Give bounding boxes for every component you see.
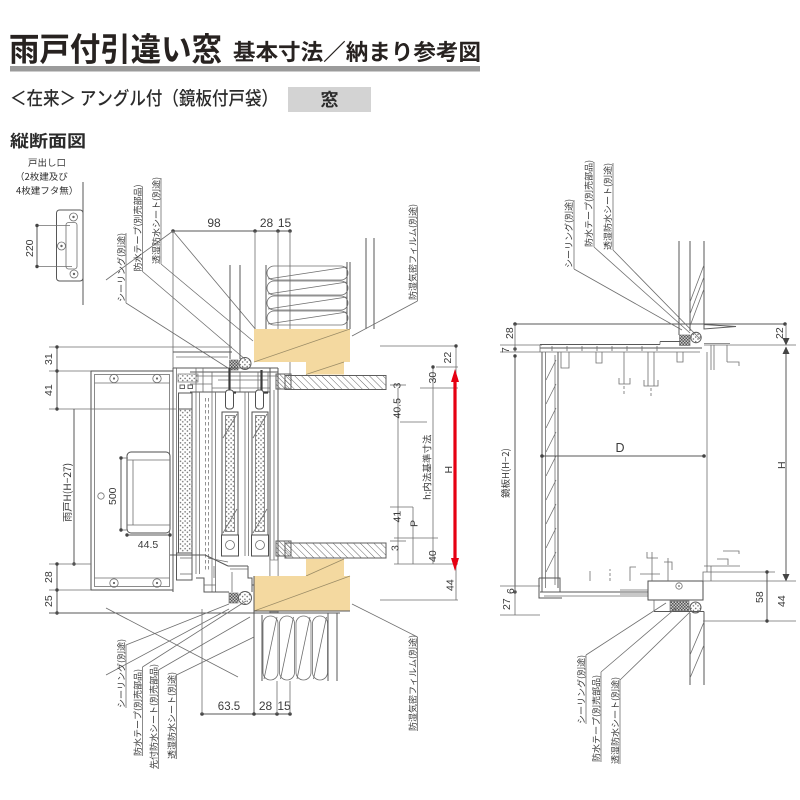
svg-text:30: 30 [427, 372, 439, 384]
svg-text:P: P [409, 520, 421, 527]
svg-text:6: 6 [505, 588, 517, 594]
svg-text:7: 7 [500, 347, 512, 353]
svg-text:220: 220 [24, 239, 36, 257]
svg-text:41: 41 [392, 511, 404, 523]
svg-text:28: 28 [504, 327, 516, 339]
svg-text:58: 58 [754, 591, 766, 603]
svg-text:D: D [615, 441, 624, 455]
svg-text:63.5: 63.5 [218, 701, 240, 713]
svg-text:98: 98 [207, 216, 221, 230]
svg-text:41: 41 [43, 384, 55, 396]
svg-text:28: 28 [259, 699, 273, 713]
svg-text:27: 27 [501, 598, 513, 610]
svg-text:40: 40 [427, 550, 439, 562]
svg-text:3: 3 [390, 545, 402, 551]
svg-text:22: 22 [442, 352, 454, 364]
svg-text:25: 25 [43, 595, 55, 607]
svg-text:44: 44 [445, 579, 457, 591]
svg-text:44: 44 [776, 595, 788, 607]
svg-text:44.5: 44.5 [138, 539, 159, 551]
svg-text:31: 31 [43, 353, 55, 365]
svg-text:H: H [776, 461, 788, 469]
svg-text:40.5: 40.5 [392, 398, 404, 419]
svg-text:15: 15 [277, 699, 291, 713]
svg-text:H: H [443, 466, 455, 474]
svg-text:28: 28 [260, 216, 274, 230]
svg-text:3: 3 [392, 383, 404, 389]
svg-text:500: 500 [107, 487, 119, 505]
svg-text:28: 28 [43, 571, 55, 583]
svg-text:15: 15 [278, 216, 292, 230]
svg-text:22: 22 [774, 327, 786, 339]
